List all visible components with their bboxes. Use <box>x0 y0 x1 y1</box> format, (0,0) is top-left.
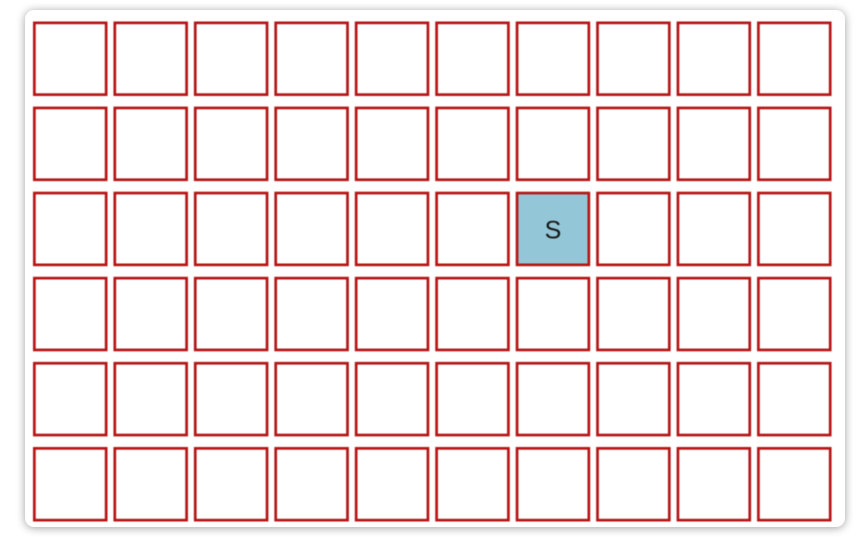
svg-text:S: S <box>545 217 562 245</box>
